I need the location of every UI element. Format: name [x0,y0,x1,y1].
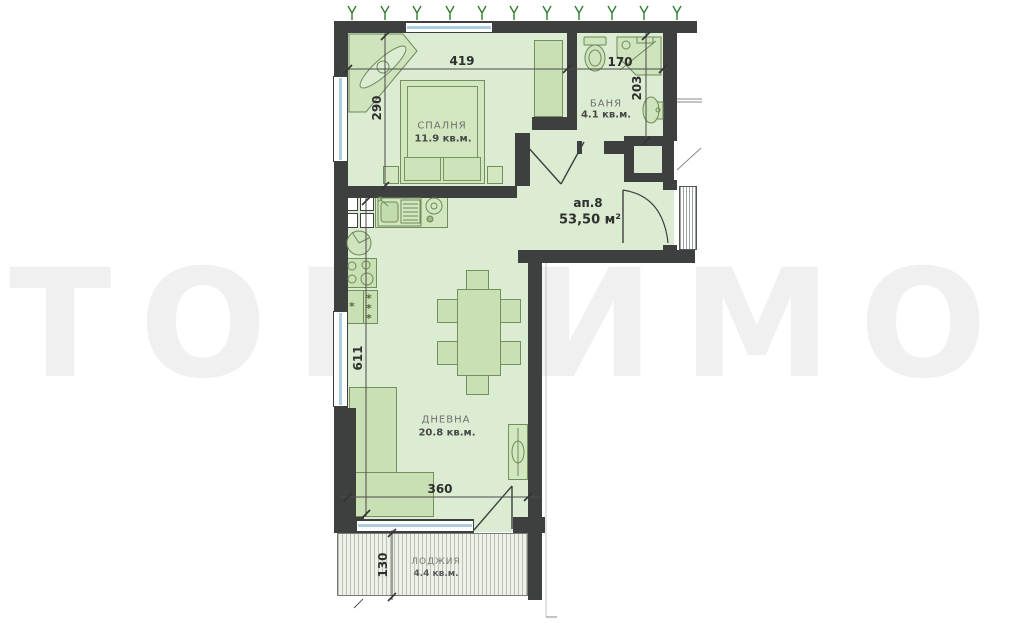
dim-bedroom-width: 419 [449,54,474,68]
dining-table [457,289,501,376]
bedroom-area-label: 11.9 кв.м. [414,134,471,145]
window-living-left [333,311,348,407]
dim-bedroom-height: 290 [370,95,384,120]
wall-closet-stub [532,117,577,130]
window-glass [339,313,342,405]
sliding-door-loggia [356,520,474,532]
bed-cushion [443,157,481,181]
loggia-area-label: 4.4 кв.м. [413,569,458,579]
stove [344,258,377,288]
nightstand [487,166,503,184]
floorplan-canvas: ТОП ИМО * * * * [0,0,1024,623]
wall-entry-stub-bottom [663,245,677,253]
dim-living-height: 611 [351,345,365,370]
sofa-horizontal [349,472,434,517]
bathroom-area-label: 4.1 кв.м. [581,110,631,121]
window-glass [358,524,472,527]
kitchen-cabinet [360,213,374,228]
wall-bedroom-hall [515,133,530,186]
living-name-label: ДНЕВНА [422,415,471,426]
wall-bedroom-bottom [334,186,517,198]
window-glass [407,26,491,29]
chair [500,341,521,365]
dim-bathroom-width: 170 [607,55,632,69]
kitchen-counter [375,196,448,228]
freezer-star-icon: * [349,301,355,312]
wall-right-living [528,250,542,600]
bedroom-name-label: СПАЛНЯ [417,121,466,132]
apartment-number-label: ап.8 [573,196,602,210]
window-bedroom-top [405,22,493,33]
wall-left-thick [334,408,356,532]
loggia-name-label: ЛОДЖИЯ [411,557,461,567]
kitchen-cabinet [360,196,374,211]
plant-stand [508,424,528,480]
apartment-area-label: 53,50 м² [559,213,621,228]
chair [500,299,521,323]
dim-bathroom-height: 203 [630,75,644,100]
wall-right-outer [663,21,677,141]
wall-top [334,21,697,33]
bed [400,80,485,184]
dim-living-width: 360 [427,482,452,496]
dim-loggia-height: 130 [376,552,390,577]
window-bedroom-left [333,76,348,162]
chair [437,299,458,323]
wall-bathroom-left [567,33,577,117]
bathroom-name-label: БАНЯ [590,99,622,110]
corridor-hatch [679,186,697,250]
shaft-interior [634,146,662,173]
window-glass [339,78,342,160]
wardrobe-closet [534,40,563,117]
vegetation-icon [348,6,681,20]
bed-cushion [404,157,441,181]
chair [466,270,489,290]
nightstand [383,166,399,184]
chair [466,375,489,395]
wall-bathroom-bottom-a [577,141,582,154]
chair [437,341,458,365]
living-area-label: 20.8 кв.м. [418,428,475,439]
freezer-star-icon: * [366,313,372,324]
fridge-divider [363,291,364,323]
